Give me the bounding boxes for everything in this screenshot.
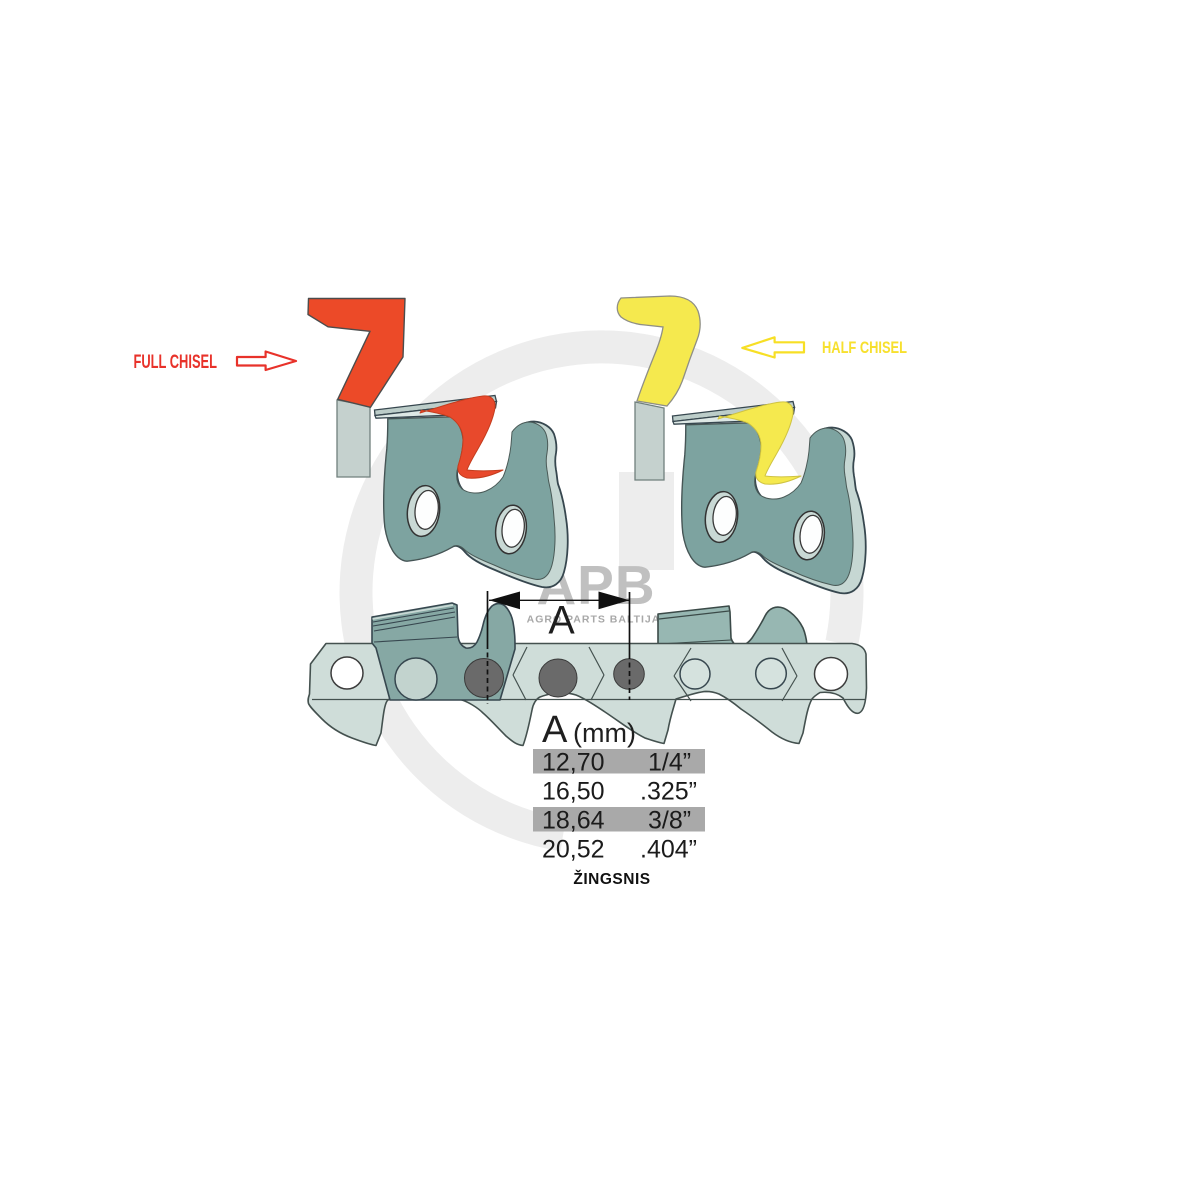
svg-text:A: A — [542, 709, 568, 751]
svg-text:12,70: 12,70 — [542, 749, 605, 777]
svg-text:FULL CHISEL: FULL CHISEL — [134, 352, 218, 373]
svg-text:20,52: 20,52 — [542, 836, 605, 864]
svg-text:ŽINGSNIS: ŽINGSNIS — [573, 870, 650, 888]
svg-text:AGRO PARTS BALTIJA: AGRO PARTS BALTIJA — [527, 614, 661, 626]
svg-text:A: A — [548, 599, 575, 643]
svg-text:.325”: .325” — [640, 778, 697, 806]
svg-text:1/4”: 1/4” — [648, 749, 691, 777]
svg-text:18,64: 18,64 — [542, 807, 605, 835]
svg-text:(mm): (mm) — [573, 718, 636, 748]
svg-text:.404”: .404” — [640, 836, 697, 864]
svg-text:16,50: 16,50 — [542, 778, 605, 806]
svg-text:3/8”: 3/8” — [648, 807, 691, 835]
svg-text:HALF CHISEL: HALF CHISEL — [822, 339, 907, 357]
